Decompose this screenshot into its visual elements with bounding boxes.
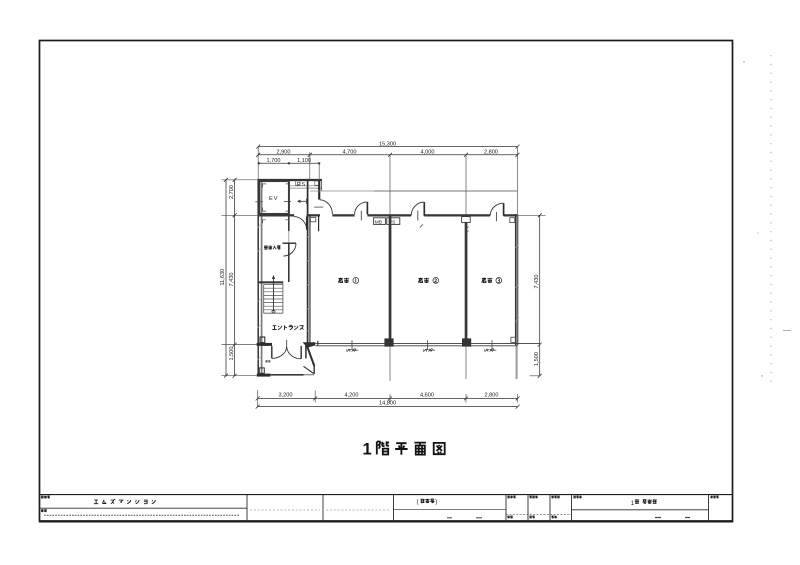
svg-text:2,800: 2,800 (485, 392, 499, 398)
svg-text:4,000: 4,000 (421, 150, 435, 156)
svg-text:4,700: 4,700 (343, 150, 357, 156)
svg-text:1,700: 1,700 (267, 158, 281, 164)
svg-text:1,500: 1,500 (229, 347, 235, 361)
svg-text:): ) (435, 500, 437, 506)
svg-text:7,430: 7,430 (534, 275, 540, 289)
svg-text:1: 1 (363, 441, 372, 459)
svg-text:3,200: 3,200 (279, 392, 293, 398)
svg-text:14,800: 14,800 (379, 401, 396, 407)
svg-text:11,630: 11,630 (220, 269, 226, 286)
svg-text:1,100: 1,100 (297, 158, 311, 164)
svg-text:EV: EV (269, 196, 278, 202)
svg-text:4,200: 4,200 (345, 392, 359, 398)
svg-text:(: ( (417, 500, 419, 506)
svg-text:2,700: 2,700 (229, 185, 235, 199)
svg-text:15,300: 15,300 (379, 142, 396, 148)
svg-text:1,500: 1,500 (534, 352, 540, 366)
svg-text:MB: MB (375, 219, 382, 225)
svg-text:2,900: 2,900 (277, 150, 291, 156)
svg-text:2,800: 2,800 (484, 150, 498, 156)
svg-text:4,600: 4,600 (420, 392, 434, 398)
svg-text:7,430: 7,430 (229, 273, 235, 287)
